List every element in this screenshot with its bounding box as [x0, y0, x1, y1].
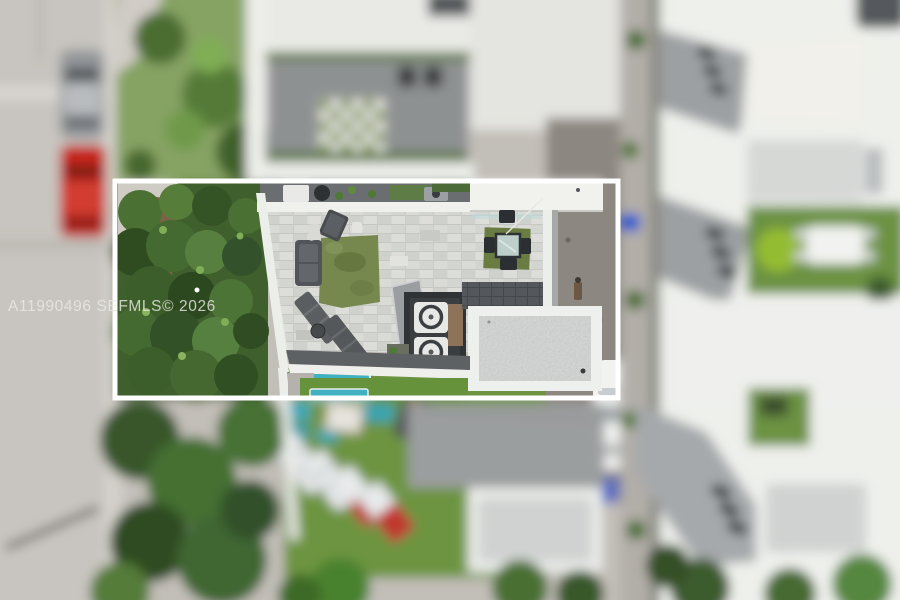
aerial-photo: A11990496 SEFMLS© 2026 [0, 0, 900, 600]
mls-watermark: A11990496 SEFMLS© 2026 [8, 298, 216, 315]
listing-photo: A11990496 SEFMLS© 2026 [0, 0, 900, 600]
